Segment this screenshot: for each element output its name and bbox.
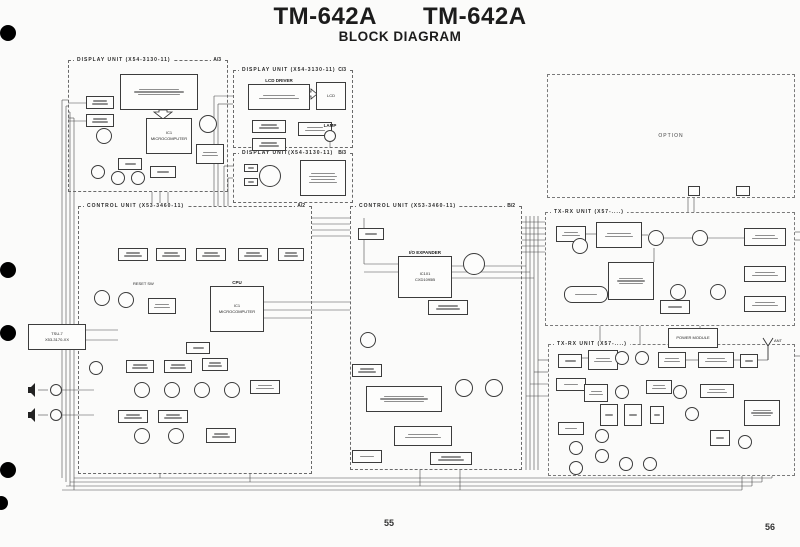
component-circle <box>569 461 583 475</box>
component-block-ctrl-a-row-3 <box>196 248 226 261</box>
component-block-ctrl-a-low-2 <box>164 360 192 373</box>
illegible-text-line <box>565 428 577 429</box>
component-block-uhf-7 <box>646 380 672 394</box>
illegible-text-line <box>92 121 108 122</box>
illegible-text-line <box>358 371 376 372</box>
block-label: POWER MODULE <box>676 336 709 341</box>
component-block-vhf-mid-2 <box>660 300 690 314</box>
component-block-ctrl-a-low-4 <box>118 410 148 423</box>
component-circle <box>738 435 752 449</box>
illegible-text-line <box>438 459 464 460</box>
option-label: OPTION <box>658 133 683 139</box>
illegible-text-line <box>709 389 726 390</box>
sheet-tag: A/3 <box>211 57 223 63</box>
component-block-display-small-3 <box>150 166 176 178</box>
block-top-label: I/O EXPANDER <box>409 250 441 255</box>
component-circle <box>569 441 583 455</box>
component-block-uhf-filter-1 <box>600 404 618 426</box>
component-block-uhf-filter-3 <box>650 406 664 424</box>
component-circle <box>118 292 134 308</box>
illegible-text-line <box>256 388 274 389</box>
unit-frame-control-unit-a: CONTROL UNIT (X53-3460-11)A/2 <box>78 206 312 474</box>
component-circle <box>259 165 281 187</box>
illegible-text-line <box>307 127 324 128</box>
illegible-text-line <box>619 283 643 284</box>
block-label: CXD1095B <box>415 278 435 283</box>
illegible-text-line <box>285 252 297 253</box>
illegible-text-line <box>93 100 106 101</box>
component-block-uhf-6 <box>584 384 608 402</box>
illegible-text-line <box>311 179 335 180</box>
illegible-text-line <box>154 307 170 308</box>
illegible-text-line <box>126 252 140 253</box>
illegible-text-line <box>209 362 221 363</box>
component-block-ctrl-a-low-1 <box>126 360 154 373</box>
component-block-uhf-if <box>744 400 780 426</box>
component-circle <box>94 290 110 306</box>
illegible-text-line <box>164 417 182 418</box>
component-block-display-reg-1 <box>86 96 114 109</box>
registration-dot <box>0 325 16 341</box>
illegible-text-line <box>124 255 142 256</box>
illegible-text-line <box>171 364 184 365</box>
component-circle <box>670 284 686 300</box>
block-label: MICROCOMPUTER <box>151 137 187 142</box>
illegible-text-line <box>753 415 771 416</box>
component-block-uhf-filter-2 <box>624 404 642 426</box>
sheet-tag: B/2 <box>505 203 517 209</box>
component-block-uhf-9 <box>710 430 730 446</box>
component-circle <box>595 449 609 463</box>
unit-frame-option-frame: OPTION <box>547 74 795 198</box>
component-circle <box>648 230 664 246</box>
illegible-text-line <box>309 182 338 183</box>
component-block-key-list <box>300 160 346 196</box>
component-block-option-conn-1 <box>688 186 700 196</box>
illegible-text-line <box>157 171 169 172</box>
component-block-lcd-ic-1 <box>252 120 286 133</box>
block-label: IC101 <box>420 272 431 277</box>
illegible-text-line <box>92 103 108 104</box>
circle-top-label: LAMP <box>324 123 337 128</box>
component-block-display-reg-2 <box>86 114 114 127</box>
component-circle <box>685 407 699 421</box>
unit-frame-label: TX-RX UNIT (X57-....) <box>554 341 630 347</box>
illegible-text-line <box>244 255 262 256</box>
sheet-tag: B/3 <box>336 150 348 156</box>
illegible-text-line <box>594 361 612 362</box>
illegible-text-line <box>707 392 727 393</box>
illegible-text-line <box>716 437 725 438</box>
block-top-label: LCD DRIVER <box>265 78 293 83</box>
component-circle <box>194 382 210 398</box>
illegible-text-line <box>360 456 374 457</box>
unit-frame-label: CONTROL UNIT (X53-3460-11) <box>84 203 187 209</box>
component-block-io-expander: IC101CXD1095B <box>398 256 452 298</box>
block-top-label: CPU <box>232 280 242 285</box>
component-circle <box>463 253 485 275</box>
model-title-right: TM-642A <box>423 3 527 31</box>
illegible-text-line <box>565 360 576 361</box>
component-circle <box>134 382 150 398</box>
illegible-text-line <box>214 433 228 434</box>
component-block-led-1 <box>244 164 258 172</box>
illegible-text-line <box>564 384 578 385</box>
component-circle <box>134 428 150 444</box>
component-circle <box>615 351 629 365</box>
illegible-text-line <box>259 127 279 128</box>
component-block-uhf-2 <box>588 350 618 370</box>
illegible-text-line <box>360 368 374 369</box>
illegible-text-line <box>384 396 424 397</box>
registration-dot <box>0 262 16 278</box>
component-circle <box>635 351 649 365</box>
component-block-ctrl-b-top-1 <box>358 228 384 240</box>
block-label: TSU-7 <box>51 332 63 337</box>
illegible-text-line <box>629 414 637 415</box>
registration-dot <box>0 462 16 478</box>
component-block-ctrl-a-ic-1 <box>148 298 176 314</box>
illegible-text-line <box>705 361 727 362</box>
component-block-option-conn-2 <box>736 186 750 196</box>
component-block-lcd-ic-2 <box>252 138 286 151</box>
illegible-text-line <box>259 98 298 99</box>
component-block-uhf-10 <box>558 422 584 435</box>
component-block-power-module: POWER MODULE <box>668 328 718 348</box>
component-block-ctrl-a-low-5 <box>158 410 188 423</box>
illegible-text-line <box>261 124 278 125</box>
illegible-text-line <box>589 394 603 395</box>
illegible-text-line <box>596 358 610 359</box>
illegible-text-line <box>155 304 168 305</box>
illegible-text-line <box>405 437 442 438</box>
illegible-text-line <box>384 401 424 402</box>
component-block-uhf-8 <box>700 384 734 398</box>
component-block-uhf-1 <box>558 354 582 368</box>
illegible-text-line <box>138 94 179 95</box>
illegible-text-line <box>755 272 776 273</box>
component-block-ctrl-b-pll <box>366 386 442 412</box>
component-block-uhf-3 <box>658 352 686 368</box>
speaker-icon <box>28 408 35 422</box>
illegible-text-line <box>259 145 279 146</box>
component-block-uhf-ant-sw <box>698 352 734 368</box>
illegible-text-line <box>93 118 106 119</box>
block-label: LCD <box>327 94 335 99</box>
illegible-text-line <box>652 388 667 389</box>
component-block-uhf-4 <box>740 354 758 368</box>
illegible-text-line <box>755 302 776 303</box>
component-block-ctrl-a-row-4 <box>238 248 268 261</box>
illegible-text-line <box>752 305 778 306</box>
component-circle <box>692 230 708 246</box>
component-block-ctrl-a-row-1 <box>118 248 148 261</box>
illegible-text-line <box>562 235 580 236</box>
component-block-ctrl-a-low-3 <box>202 358 228 371</box>
illegible-text-line <box>126 414 140 415</box>
model-title-left: TM-642A <box>273 3 377 31</box>
component-block-cpu: IC1MICROCOMPUTER <box>210 286 264 332</box>
component-circle <box>50 384 62 396</box>
component-block-ctrl-b-mid-1 <box>428 300 468 315</box>
illegible-text-line <box>305 130 325 131</box>
illegible-text-line <box>261 142 278 143</box>
component-block-vhf-right-2 <box>744 266 786 282</box>
component-block-ctrl-a-low-7 <box>250 380 280 394</box>
illegible-text-line <box>665 358 678 359</box>
illegible-text-line <box>619 278 642 279</box>
component-circle <box>89 361 103 375</box>
illegible-text-line <box>309 176 338 177</box>
block-label: X53-3170-XX <box>45 338 69 343</box>
component-circle <box>199 115 217 133</box>
illegible-text-line <box>248 181 254 182</box>
illegible-text-line <box>664 361 680 362</box>
component-block-vhf-in-2 <box>596 222 642 248</box>
illegible-text-line <box>617 280 646 281</box>
illegible-text-line <box>605 236 634 237</box>
illegible-text-line <box>263 95 295 96</box>
component-block-led-2 <box>244 178 258 186</box>
page-title: TM-642A TM-642A <box>0 3 800 31</box>
block-label: IC1 <box>234 304 240 309</box>
component-block-ctrl-b-low-1 <box>394 426 452 446</box>
illegible-text-line <box>365 233 377 234</box>
component-block-ctrl-a-row-2 <box>156 248 186 261</box>
component-circle <box>96 128 112 144</box>
component-block-lcd-driver <box>248 84 310 110</box>
block-diagram-page: TM-642A TM-642A BLOCK DIAGRAM DISPLAY UN… <box>0 0 800 547</box>
component-block-ctrl-b-low-3 <box>430 452 472 465</box>
annotation-label: ANT <box>774 338 782 343</box>
component-block-key-switch-pad <box>120 74 198 110</box>
component-circle <box>360 332 376 348</box>
illegible-text-line <box>564 232 578 233</box>
illegible-text-line <box>745 360 753 361</box>
page-number-left: 55 <box>384 518 394 528</box>
component-circle <box>224 382 240 398</box>
illegible-text-line <box>202 155 218 156</box>
illegible-text-line <box>124 417 142 418</box>
component-block-vhf-pill <box>564 286 608 303</box>
component-block-tsu-option: TSU-7X53-3170-XX <box>28 324 86 350</box>
component-circle <box>673 385 687 399</box>
illegible-text-line <box>311 173 334 174</box>
illegible-text-line <box>751 412 773 413</box>
illegible-text-line <box>134 91 184 92</box>
illegible-text-line <box>170 367 186 368</box>
component-circle <box>324 130 336 142</box>
sheet-tag: A/2 <box>295 203 307 209</box>
unit-frame-label: DISPLAY UNIT (X54-3130-11) <box>74 57 174 63</box>
illegible-text-line <box>203 152 216 153</box>
illegible-text-line <box>139 89 180 90</box>
illegible-text-line <box>380 398 429 399</box>
illegible-text-line <box>591 391 602 392</box>
illegible-text-line <box>258 385 272 386</box>
component-block-lcd: LCD <box>316 82 346 110</box>
component-block-display-mcu: IC1MICROCOMPUTER <box>146 118 192 154</box>
illegible-text-line <box>284 255 299 256</box>
diagram-subtitle: BLOCK DIAGRAM <box>0 29 800 44</box>
illegible-text-line <box>707 358 725 359</box>
illegible-text-line <box>752 238 778 239</box>
illegible-text-line <box>132 367 148 368</box>
annotation-label: RESET SW <box>133 281 154 286</box>
component-circle <box>595 429 609 443</box>
illegible-text-line <box>202 255 220 256</box>
component-block-vhf-right-1 <box>744 228 786 246</box>
component-block-uhf-5 <box>556 378 586 391</box>
unit-frame-label: TX-RX UNIT (X57-....) <box>551 209 627 215</box>
unit-frame-label: CONTROL UNIT (X53-3460-11) <box>356 203 459 209</box>
component-block-display-small-1 <box>118 158 142 170</box>
component-circle <box>168 428 184 444</box>
block-label: IC1 <box>166 131 172 136</box>
illegible-text-line <box>605 414 613 415</box>
illegible-text-line <box>162 255 180 256</box>
component-circle <box>455 379 473 397</box>
sheet-tag: C/3 <box>336 67 348 73</box>
component-block-ctrl-b-low-2 <box>352 450 382 463</box>
illegible-text-line <box>654 414 660 415</box>
illegible-text-line <box>755 235 776 236</box>
illegible-text-line <box>436 308 460 309</box>
illegible-text-line <box>607 233 630 234</box>
component-circle <box>485 379 503 397</box>
component-circle <box>643 457 657 471</box>
component-circle <box>615 385 629 399</box>
illegible-text-line <box>752 275 778 276</box>
registration-dot <box>0 496 8 510</box>
illegible-text-line <box>193 347 204 348</box>
registration-dot <box>0 25 16 41</box>
illegible-text-line <box>166 414 180 415</box>
speaker-icon <box>28 383 35 397</box>
component-circle <box>710 284 726 300</box>
illegible-text-line <box>668 306 682 307</box>
illegible-text-line <box>438 305 458 306</box>
component-circle <box>111 171 125 185</box>
component-circle <box>572 238 588 254</box>
component-block-ctrl-a-row-5 <box>278 248 304 261</box>
block-label: MICROCOMPUTER <box>219 310 255 315</box>
illegible-text-line <box>575 294 597 295</box>
component-circle <box>50 409 62 421</box>
component-circle <box>164 382 180 398</box>
illegible-text-line <box>753 410 771 411</box>
component-circle <box>131 171 145 185</box>
illegible-text-line <box>208 365 223 366</box>
illegible-text-line <box>164 252 178 253</box>
component-block-ctrl-b-mid-2 <box>352 364 382 377</box>
illegible-text-line <box>441 456 462 457</box>
component-block-vhf-mid-1 <box>608 262 654 300</box>
unit-frame-label: DISPLAY UNIT (X54-3130-11) <box>239 67 339 73</box>
illegible-text-line <box>408 434 438 435</box>
page-number-right: 56 <box>765 522 775 532</box>
component-block-vhf-right-3 <box>744 296 786 312</box>
component-circle <box>91 165 105 179</box>
illegible-text-line <box>125 163 136 164</box>
illegible-text-line <box>204 252 218 253</box>
illegible-text-line <box>246 252 260 253</box>
component-circle <box>619 457 633 471</box>
illegible-text-line <box>653 385 665 386</box>
component-block-ctrl-a-xtal <box>186 342 210 354</box>
illegible-text-line <box>212 436 230 437</box>
illegible-text-line <box>248 167 254 168</box>
component-block-ctrl-a-low-6 <box>206 428 236 443</box>
component-block-display-small-2 <box>196 144 224 164</box>
illegible-text-line <box>133 364 146 365</box>
